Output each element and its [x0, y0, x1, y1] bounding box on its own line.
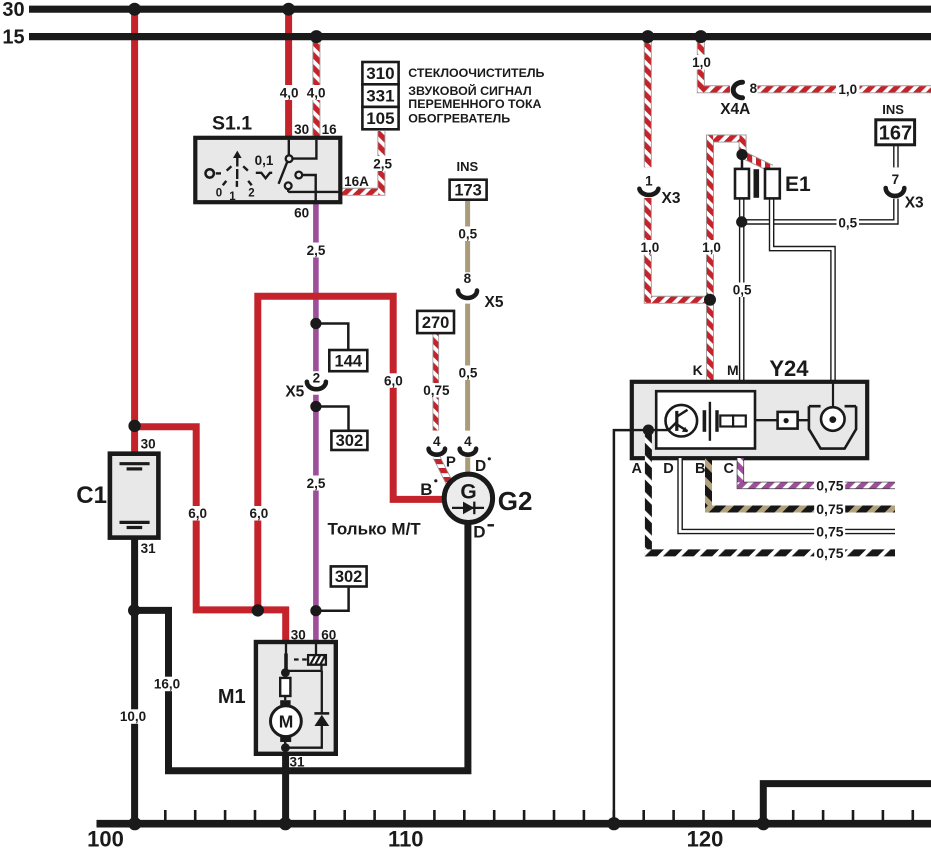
svg-text:X3: X3: [905, 195, 924, 212]
svg-text:6,0: 6,0: [384, 373, 403, 388]
svg-text:1,0: 1,0: [702, 240, 721, 255]
svg-text:X5: X5: [485, 294, 504, 311]
svg-text:31: 31: [289, 755, 305, 770]
svg-text:ЗВУКОВОЙ СИГНАЛ: ЗВУКОВОЙ СИГНАЛ: [408, 83, 531, 98]
svg-text:INS: INS: [882, 102, 904, 117]
svg-text:302: 302: [335, 568, 363, 586]
svg-text:D: D: [475, 458, 486, 475]
svg-text:30: 30: [2, 0, 24, 21]
svg-text:ОБОГРЕВАТЕЛЬ: ОБОГРЕВАТЕЛЬ: [408, 111, 510, 125]
svg-text:30: 30: [291, 628, 306, 643]
svg-text:7: 7: [892, 172, 900, 187]
svg-text:2,5: 2,5: [373, 157, 392, 172]
svg-text:10,0: 10,0: [120, 709, 146, 724]
svg-text:8: 8: [750, 81, 758, 96]
svg-text:B: B: [695, 461, 705, 477]
svg-text:2: 2: [313, 371, 321, 386]
svg-text:60: 60: [321, 628, 336, 643]
svg-text:M: M: [279, 711, 294, 731]
svg-text:0,75: 0,75: [816, 501, 843, 517]
svg-text:D: D: [473, 522, 485, 541]
svg-text:X4A: X4A: [720, 101, 750, 118]
svg-text:СТЕКЛООЧИСТИТЕЛЬ: СТЕКЛООЧИСТИТЕЛЬ: [408, 66, 544, 80]
svg-text:105: 105: [366, 109, 394, 128]
svg-text:2: 2: [248, 187, 254, 199]
svg-text:D: D: [663, 461, 673, 477]
svg-text:S1.1: S1.1: [212, 113, 252, 135]
svg-text:X5: X5: [285, 383, 304, 400]
svg-text:4: 4: [464, 434, 472, 449]
svg-text:1: 1: [645, 174, 653, 189]
svg-text:1,0: 1,0: [641, 240, 660, 255]
svg-text:0,75: 0,75: [423, 383, 450, 398]
svg-text:INS: INS: [456, 159, 478, 174]
svg-text:0,5: 0,5: [458, 227, 477, 242]
svg-text:8: 8: [464, 271, 472, 286]
svg-text:G: G: [460, 481, 476, 504]
svg-text:0,75: 0,75: [816, 478, 843, 494]
svg-text:2,5: 2,5: [307, 243, 326, 258]
svg-text:1,0: 1,0: [838, 82, 857, 97]
svg-text:173: 173: [454, 181, 482, 199]
svg-text:6,0: 6,0: [250, 506, 269, 521]
svg-text:0,5: 0,5: [459, 366, 478, 381]
svg-text:0,5: 0,5: [733, 283, 752, 298]
svg-text:ПЕРЕМЕННОГО ТОКА: ПЕРЕМЕННОГО ТОКА: [408, 97, 541, 111]
svg-text:302: 302: [336, 432, 364, 450]
svg-text:P: P: [446, 453, 456, 470]
svg-text:4: 4: [433, 434, 441, 449]
svg-text:0,1: 0,1: [255, 153, 274, 168]
svg-text:C1: C1: [76, 482, 107, 509]
svg-text:16,0: 16,0: [154, 677, 180, 692]
svg-text:15: 15: [2, 27, 24, 49]
svg-text:4,0: 4,0: [307, 86, 326, 101]
svg-text:4,0: 4,0: [280, 86, 299, 101]
svg-text:M: M: [727, 362, 739, 378]
svg-text:X3: X3: [662, 190, 681, 207]
svg-text:B: B: [420, 480, 432, 499]
svg-text:100: 100: [87, 826, 124, 848]
svg-text:6,0: 6,0: [188, 506, 207, 521]
svg-text:144: 144: [335, 352, 363, 370]
svg-text:120: 120: [687, 826, 724, 848]
svg-text:1,0: 1,0: [692, 55, 711, 70]
svg-text:0,75: 0,75: [816, 523, 843, 539]
svg-text:30: 30: [294, 122, 309, 137]
svg-text:М1: М1: [218, 686, 246, 708]
svg-text:110: 110: [388, 826, 424, 848]
svg-text:30: 30: [141, 437, 156, 452]
svg-text:G2: G2: [498, 486, 533, 516]
svg-text:31: 31: [141, 541, 157, 556]
svg-text:16: 16: [322, 122, 338, 137]
svg-text:K: K: [693, 362, 703, 378]
svg-text:E1: E1: [785, 173, 811, 196]
svg-text:C: C: [723, 461, 734, 477]
svg-text:Только М/Т: Только М/Т: [328, 519, 422, 538]
svg-text:Y24: Y24: [769, 356, 809, 381]
svg-text:A: A: [632, 461, 643, 477]
svg-text:0: 0: [216, 187, 222, 199]
svg-text:2,5: 2,5: [307, 476, 326, 491]
svg-text:0,5: 0,5: [838, 215, 857, 230]
svg-text:310: 310: [366, 64, 394, 83]
svg-text:16A: 16A: [344, 174, 369, 189]
svg-text:331: 331: [366, 87, 394, 106]
svg-text:60: 60: [294, 206, 309, 221]
svg-text:0,75: 0,75: [816, 545, 843, 561]
svg-text:1: 1: [229, 191, 236, 203]
svg-text:167: 167: [879, 122, 912, 144]
svg-text:270: 270: [422, 314, 450, 332]
